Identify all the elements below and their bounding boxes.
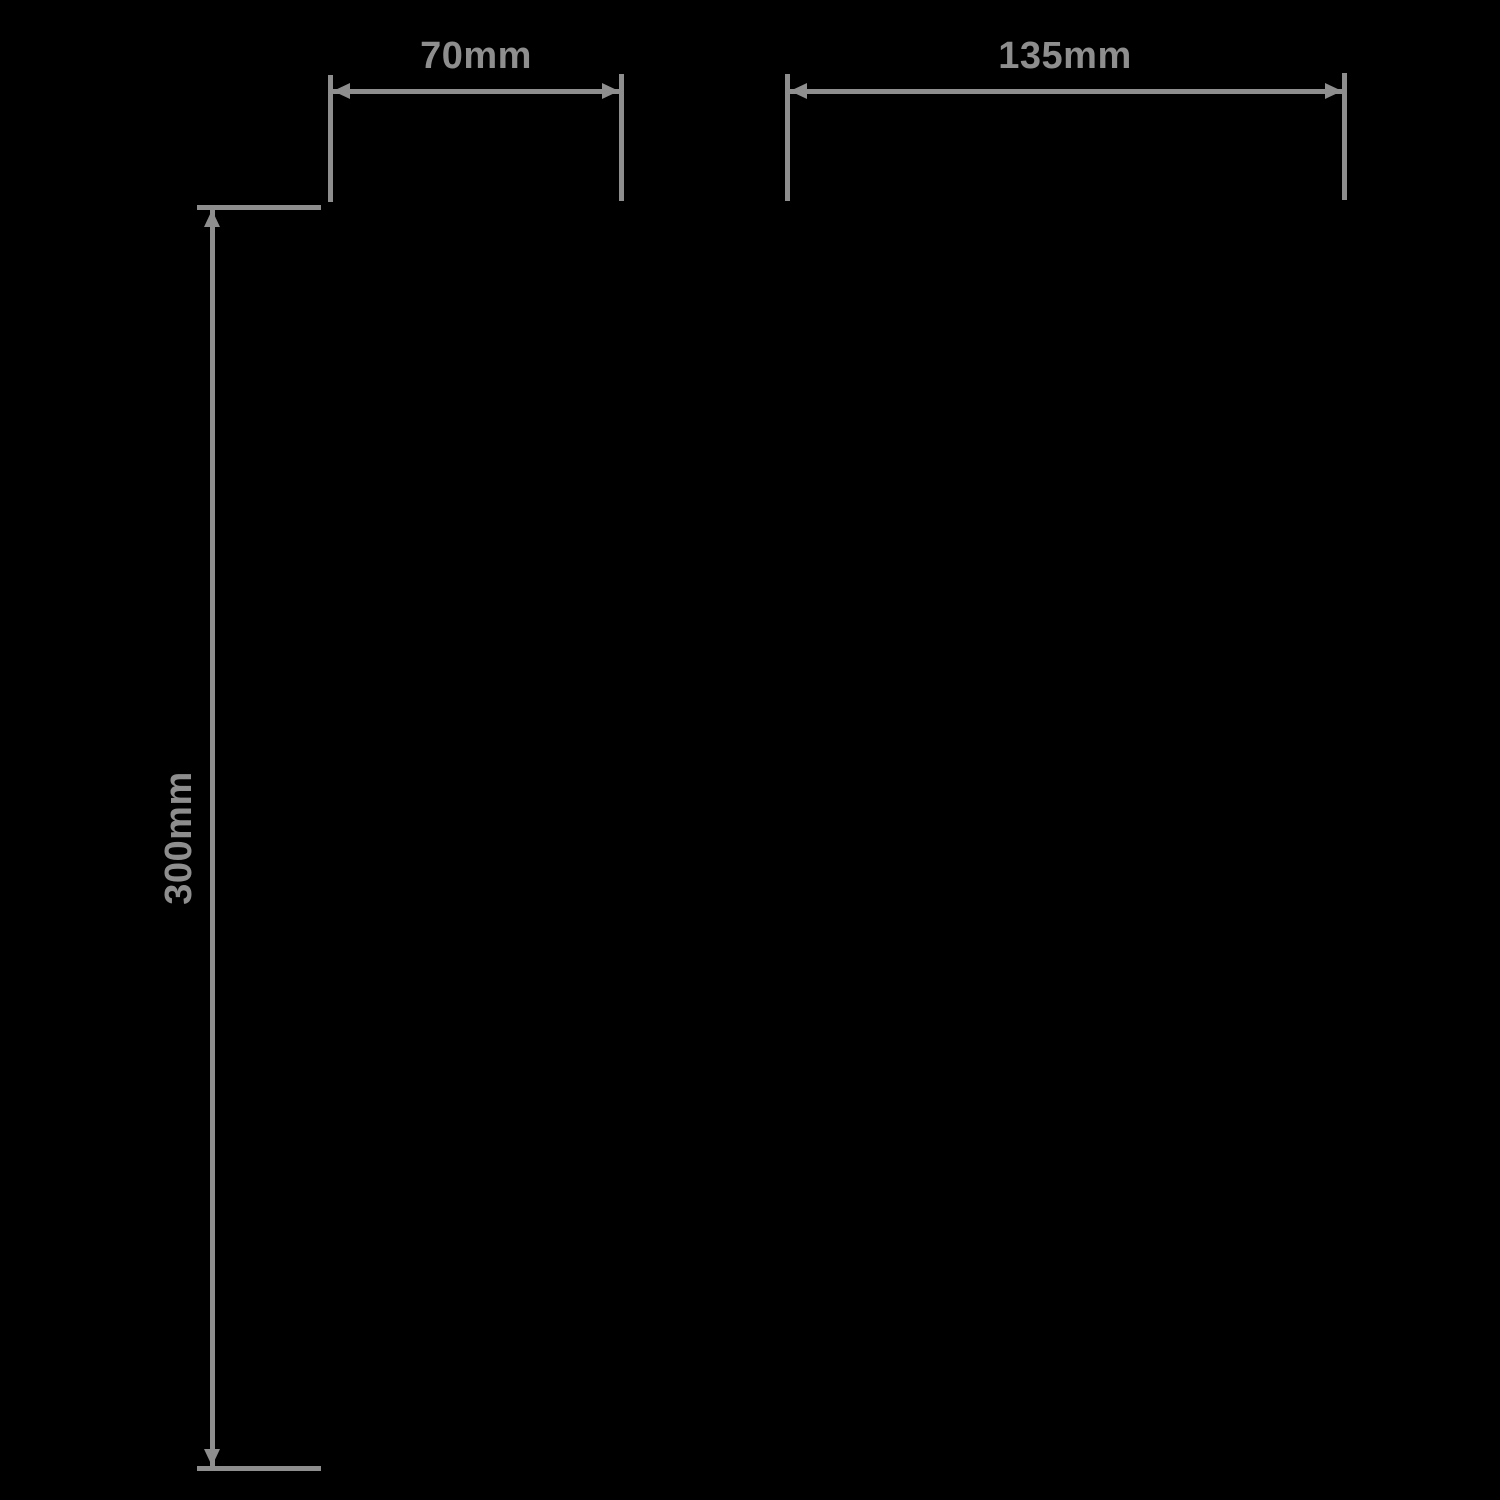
- dimension-diagram: 70mm 135mm 300mm: [0, 0, 1500, 1500]
- arrowhead-left-icon: [790, 83, 807, 99]
- dimension-label-135mm: 135mm: [955, 37, 1175, 75]
- arrowhead-up-icon: [204, 210, 220, 227]
- arrowhead-right-icon: [1325, 83, 1342, 99]
- arrowhead-left-icon: [333, 83, 350, 99]
- dimension-line: [333, 89, 619, 94]
- dimension-line: [210, 210, 215, 1466]
- extension-line-right: [1342, 73, 1347, 200]
- extension-line-bottom: [197, 1466, 321, 1471]
- extension-line-right: [619, 74, 624, 201]
- arrowhead-down-icon: [204, 1449, 220, 1466]
- arrowhead-right-icon: [602, 83, 619, 99]
- dimension-line: [790, 89, 1342, 94]
- dimension-label-300mm: 300mm: [160, 728, 198, 948]
- dimension-label-70mm: 70mm: [366, 37, 586, 75]
